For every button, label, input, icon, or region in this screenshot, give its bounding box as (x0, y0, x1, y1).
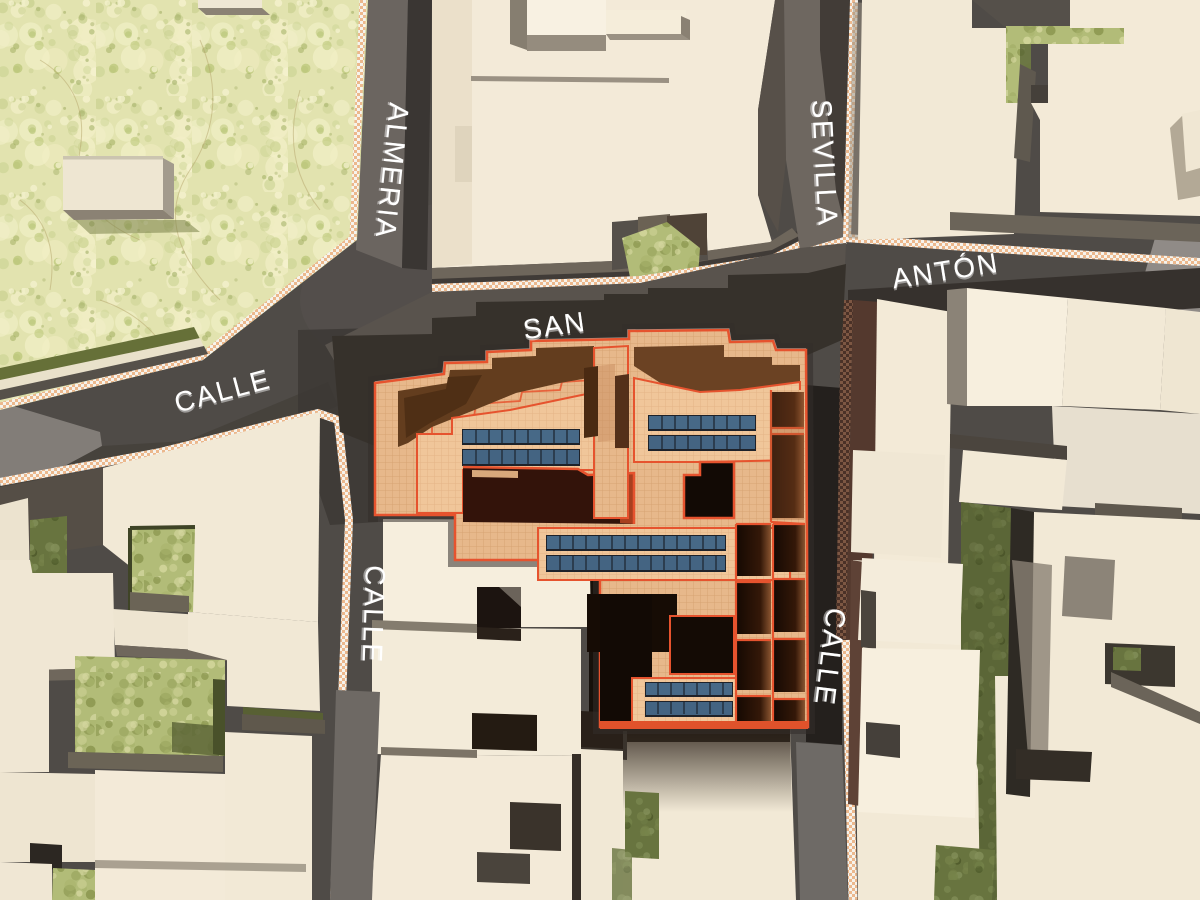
svg-text:CALLE: CALLE (357, 565, 391, 665)
